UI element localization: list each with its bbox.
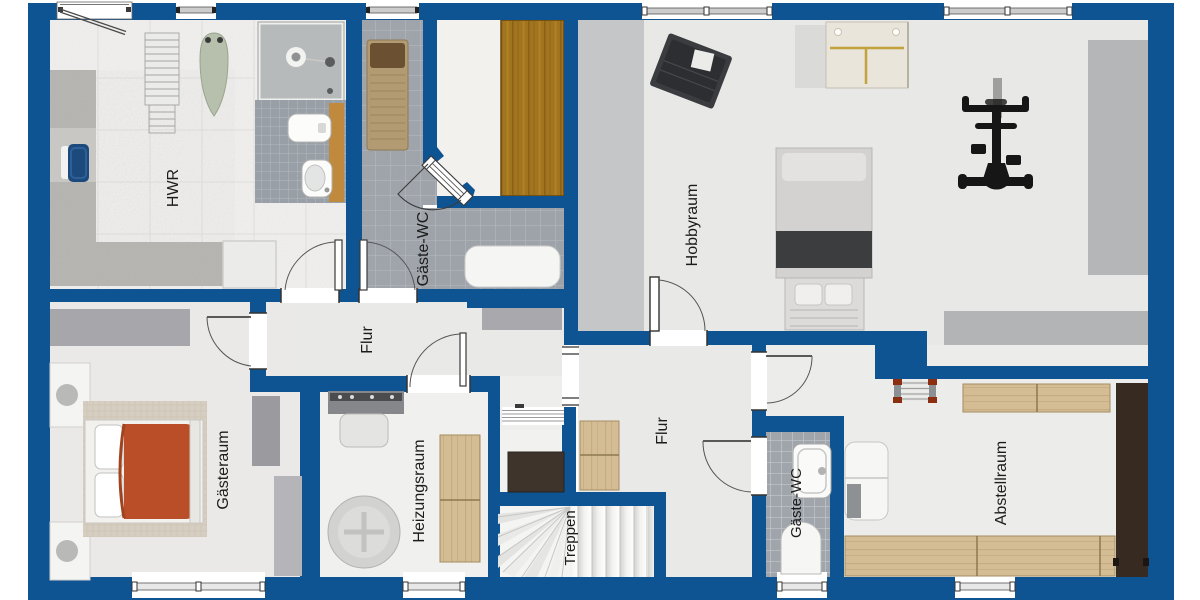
svg-text:Gäste-WC: Gäste-WC [415,212,432,287]
svg-text:Abstellraum: Abstellraum [993,441,1010,525]
svg-text:Gäste-WC: Gäste-WC [788,468,805,538]
svg-text:Gästeraum: Gästeraum [215,430,232,509]
svg-text:Heizungsraum: Heizungsraum [411,439,428,542]
svg-text:HWR: HWR [165,169,182,207]
svg-text:Treppen: Treppen [562,510,579,565]
svg-text:Hobbyraum: Hobbyraum [684,184,701,267]
svg-text:Flur: Flur [654,417,671,445]
svg-text:Flur: Flur [359,326,376,354]
